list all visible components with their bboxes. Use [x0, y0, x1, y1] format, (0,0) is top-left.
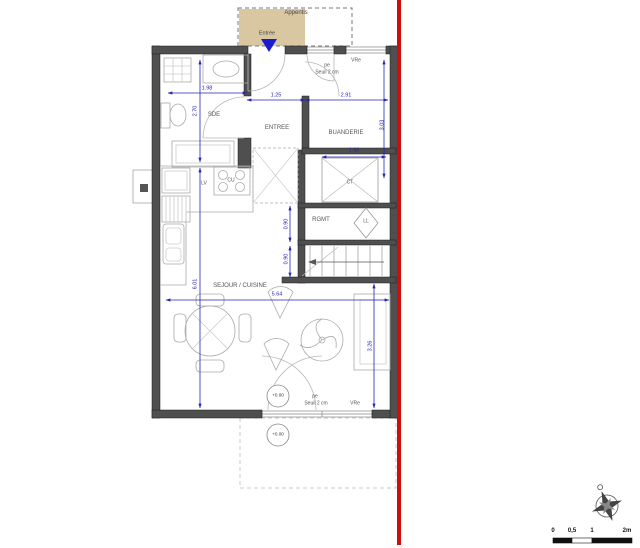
scale-bar	[553, 538, 632, 543]
opening-vr-bottom-label: VRe	[350, 402, 360, 407]
appentis-label: Appentis	[284, 10, 307, 16]
scale-tick-05: 0,5	[568, 528, 576, 534]
equip-label-ct: CT	[347, 181, 354, 186]
dim-top-right: 2.91	[341, 93, 352, 99]
dim-sde-height: 2.70	[193, 106, 199, 117]
dim-top-mid: 1.25	[271, 93, 282, 99]
scale-tick-0: 0	[551, 528, 554, 534]
level-marker-exterior: +0.00	[272, 433, 284, 438]
windows	[133, 47, 386, 417]
dimension-lines	[166, 60, 389, 408]
room-label-buanderie: BUANDERIE	[328, 130, 363, 136]
closets	[253, 148, 378, 238]
dim-sejour-height: 6.01	[193, 279, 199, 290]
scale-tick-1: 1	[590, 528, 593, 534]
sejour-furniture	[174, 287, 390, 372]
opening-vr-top-label: VRe	[351, 59, 361, 64]
dim-stair-upper: 0.90	[284, 219, 290, 230]
room-label-entree: ENTREE	[265, 125, 289, 131]
equip-label-lv: LV	[201, 182, 207, 187]
room-label-rgmt: RGMT	[312, 217, 330, 223]
equip-label-ll: LL	[363, 220, 369, 225]
party-wall-red-line	[397, 0, 401, 545]
dim-top-left: 1.98	[202, 86, 213, 92]
opening-seuil-bottom-label: Seuil 2 cm	[304, 402, 327, 407]
opening-pe-top-label: pe	[324, 64, 330, 69]
dim-stair-lower: 0.90	[284, 254, 290, 265]
floorplan-canvas: Appentis Entrée pe Seuil 2 cm VRe 1.98 1…	[0, 0, 640, 548]
sde-fixtures	[161, 55, 248, 167]
room-label-sejour: SEJOUR / CUISINE	[213, 283, 267, 289]
terrace-outline	[240, 418, 396, 488]
opening-seuil-top-label: Seuil 2 cm	[315, 71, 338, 76]
dim-sejour-width: 5.64	[272, 292, 283, 298]
compass-rose-icon	[584, 479, 627, 526]
opening-pe-bottom-label: pe	[312, 395, 318, 400]
dim-buanderie-height: 3.03	[380, 120, 386, 131]
floorplan-drawing	[0, 0, 640, 548]
staircase	[302, 246, 384, 276]
equip-label-cu: CU	[227, 179, 234, 184]
dim-terrace-side: 3.26	[368, 341, 374, 352]
room-label-sde: SDE	[208, 112, 220, 118]
dim-ct-width: 1.66	[349, 148, 360, 154]
level-marker-interior: +0.00	[272, 394, 284, 399]
entree-arrow-label: Entrée	[259, 31, 275, 37]
door-swings	[203, 54, 339, 410]
scale-tick-2m: 2m	[623, 528, 632, 534]
left-shaft-marker	[140, 184, 148, 192]
